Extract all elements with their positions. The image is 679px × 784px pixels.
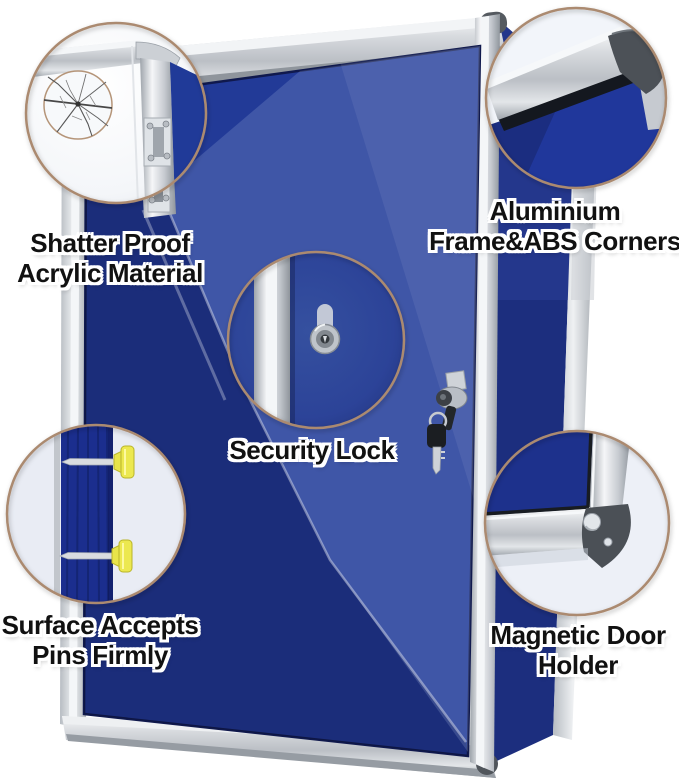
label-line: Frame&ABS Corners [429,226,679,256]
callout-circle-pin-surface [7,425,185,603]
label-line: Aluminium [429,196,679,226]
product-feature-image: Shatter Proof Acrylic Material Aluminium… [0,0,679,784]
cracked-acrylic-icon [44,71,112,139]
label-frame-corners: Aluminium Frame&ABS Corners [429,196,679,256]
callout-circle-shatterproof [25,23,207,204]
callout-circle-frame-corners [486,8,668,190]
label-line: Shatter Proof [17,228,203,258]
label-pin-surface: Surface Accepts Pins Firmly [2,610,199,670]
label-line: Holder [490,650,665,680]
label-line: Surface Accepts [2,610,199,640]
label-line: Security Lock [229,435,394,465]
label-shatterproof: Shatter Proof Acrylic Material [17,228,203,288]
label-magnetic-holder: Magnetic Door Holder [490,620,665,680]
callout-circle-security-lock [228,252,404,430]
callout-circle-magnetic-holder [484,430,669,615]
label-security-lock: Security Lock [229,435,394,465]
label-line: Magnetic Door [490,620,665,650]
label-line: Acrylic Material [17,258,203,288]
label-line: Pins Firmly [2,640,199,670]
